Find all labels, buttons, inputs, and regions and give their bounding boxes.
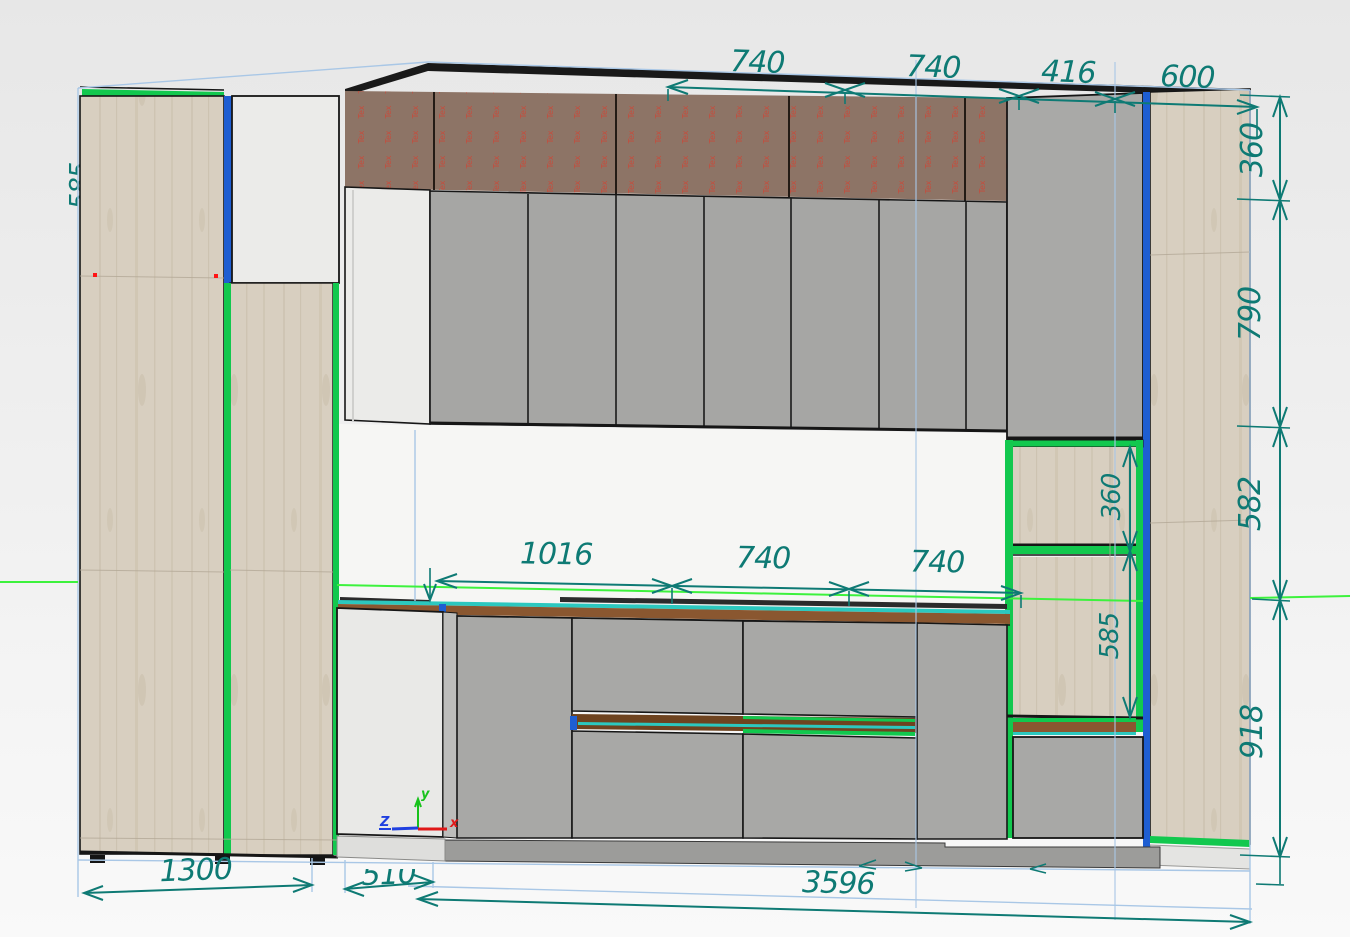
base-drawer-upper-2[interactable] bbox=[743, 621, 917, 717]
right-tall-gray-panel[interactable] bbox=[1007, 93, 1143, 440]
wall-gap bbox=[337, 424, 1007, 612]
left-unit-door-wood[interactable] bbox=[230, 283, 333, 855]
dim-bottom-1300[interactable]: 1300 bbox=[159, 852, 233, 890]
axis-z-label: Z bbox=[379, 815, 390, 830]
left-unit-white-panel[interactable] bbox=[232, 96, 339, 283]
axis-y-label: y bbox=[421, 787, 430, 802]
base-drawer-lower-2[interactable] bbox=[743, 734, 917, 839]
dim-right-360[interactable]: 360 bbox=[1235, 123, 1270, 177]
base-door-1[interactable] bbox=[457, 616, 572, 838]
wall-band-texture bbox=[345, 91, 1007, 201]
right-edge-blue[interactable] bbox=[1143, 92, 1150, 867]
shelf-top-edge-green[interactable] bbox=[1007, 440, 1143, 447]
cad-canvas[interactable]: Tex 585 bbox=[0, 0, 1350, 937]
left-unit-side-panel-wood[interactable] bbox=[80, 96, 224, 854]
upper-door-white[interactable] bbox=[345, 187, 430, 424]
left-tall-unit[interactable] bbox=[80, 87, 339, 865]
shelf-bottom-wood-strip[interactable] bbox=[1013, 722, 1136, 732]
axis-x-label: x bbox=[449, 816, 459, 831]
dim-bottom-3596[interactable]: 3596 bbox=[802, 865, 875, 902]
dim-top-416[interactable]: 416 bbox=[1041, 54, 1096, 91]
dim-top-740b[interactable]: 740 bbox=[906, 49, 961, 86]
dim-right-582[interactable]: 582 bbox=[1233, 477, 1268, 531]
wall-band[interactable] bbox=[345, 91, 1007, 201]
base-door-2[interactable] bbox=[917, 623, 1007, 839]
dim-shelf-360[interactable]: 360 bbox=[1097, 473, 1127, 520]
left-unit-door-edge-green-l[interactable] bbox=[224, 283, 231, 855]
dim-shelf-585[interactable]: 585 bbox=[1095, 612, 1125, 659]
shelf-edge-green-right[interactable] bbox=[1136, 440, 1143, 732]
base-drawer-upper-1[interactable] bbox=[572, 618, 743, 714]
shelf-drawer-front[interactable] bbox=[1013, 737, 1143, 838]
shelf-mid[interactable] bbox=[1007, 545, 1143, 555]
dim-worktop-1016[interactable]: 1016 bbox=[520, 536, 593, 572]
dim-bottom-510[interactable]: 510 bbox=[361, 856, 416, 893]
dim-worktop-740a[interactable]: 740 bbox=[736, 541, 791, 577]
base-drawer-lower-1[interactable] bbox=[572, 731, 743, 838]
base-white-cabinet[interactable] bbox=[337, 608, 443, 837]
upper-doors-gray[interactable] bbox=[430, 191, 1007, 431]
dim-top-740a[interactable]: 740 bbox=[730, 44, 785, 81]
dim-right-918[interactable]: 918 bbox=[1235, 705, 1270, 759]
dim-worktop-740b[interactable]: 740 bbox=[910, 545, 965, 581]
dim-right-790[interactable]: 790 bbox=[1233, 287, 1268, 341]
shelf-bottom-rail[interactable] bbox=[1007, 716, 1143, 735]
upper-cabinets[interactable] bbox=[345, 187, 1007, 431]
toe-kick-white[interactable] bbox=[337, 836, 445, 861]
dim-top-600[interactable]: 600 bbox=[1160, 59, 1215, 96]
right-cabinet-plinth[interactable] bbox=[1150, 845, 1250, 869]
left-unit-edge-blue[interactable] bbox=[224, 96, 232, 283]
base-filler[interactable] bbox=[443, 612, 457, 838]
